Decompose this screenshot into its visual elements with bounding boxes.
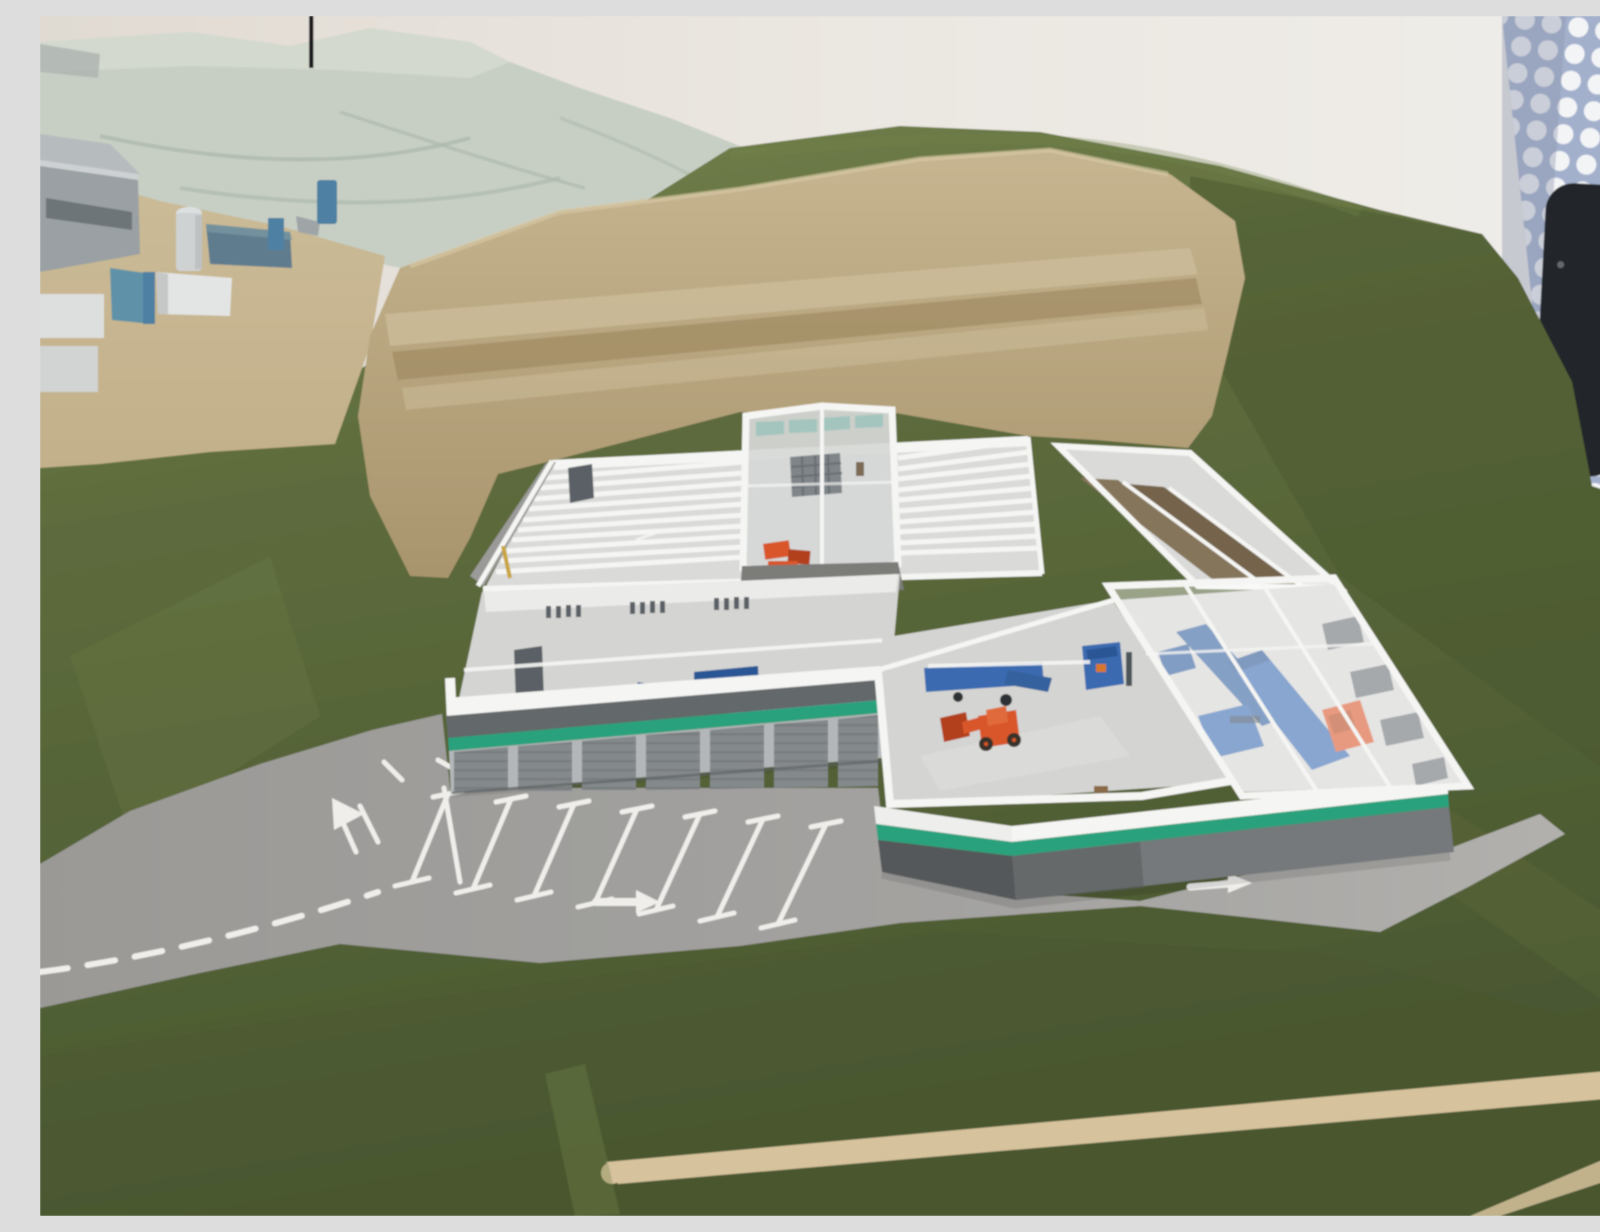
pallet (1094, 786, 1108, 793)
skylight-tower (740, 406, 904, 594)
blue-stack (317, 180, 337, 224)
scale-model-scene (40, 16, 1600, 1216)
tower-small-door (856, 462, 864, 476)
hall-end-door (568, 464, 594, 503)
cluster-blue-column (268, 218, 284, 250)
model-photograph (40, 16, 1600, 1216)
corner-post (1126, 652, 1132, 686)
cluster-tank-column (143, 272, 155, 324)
yard-blue-container (1082, 642, 1124, 690)
cluster-white-box (40, 294, 104, 338)
antenna-mast (309, 16, 314, 68)
cluster-white-box-2 (40, 346, 98, 392)
